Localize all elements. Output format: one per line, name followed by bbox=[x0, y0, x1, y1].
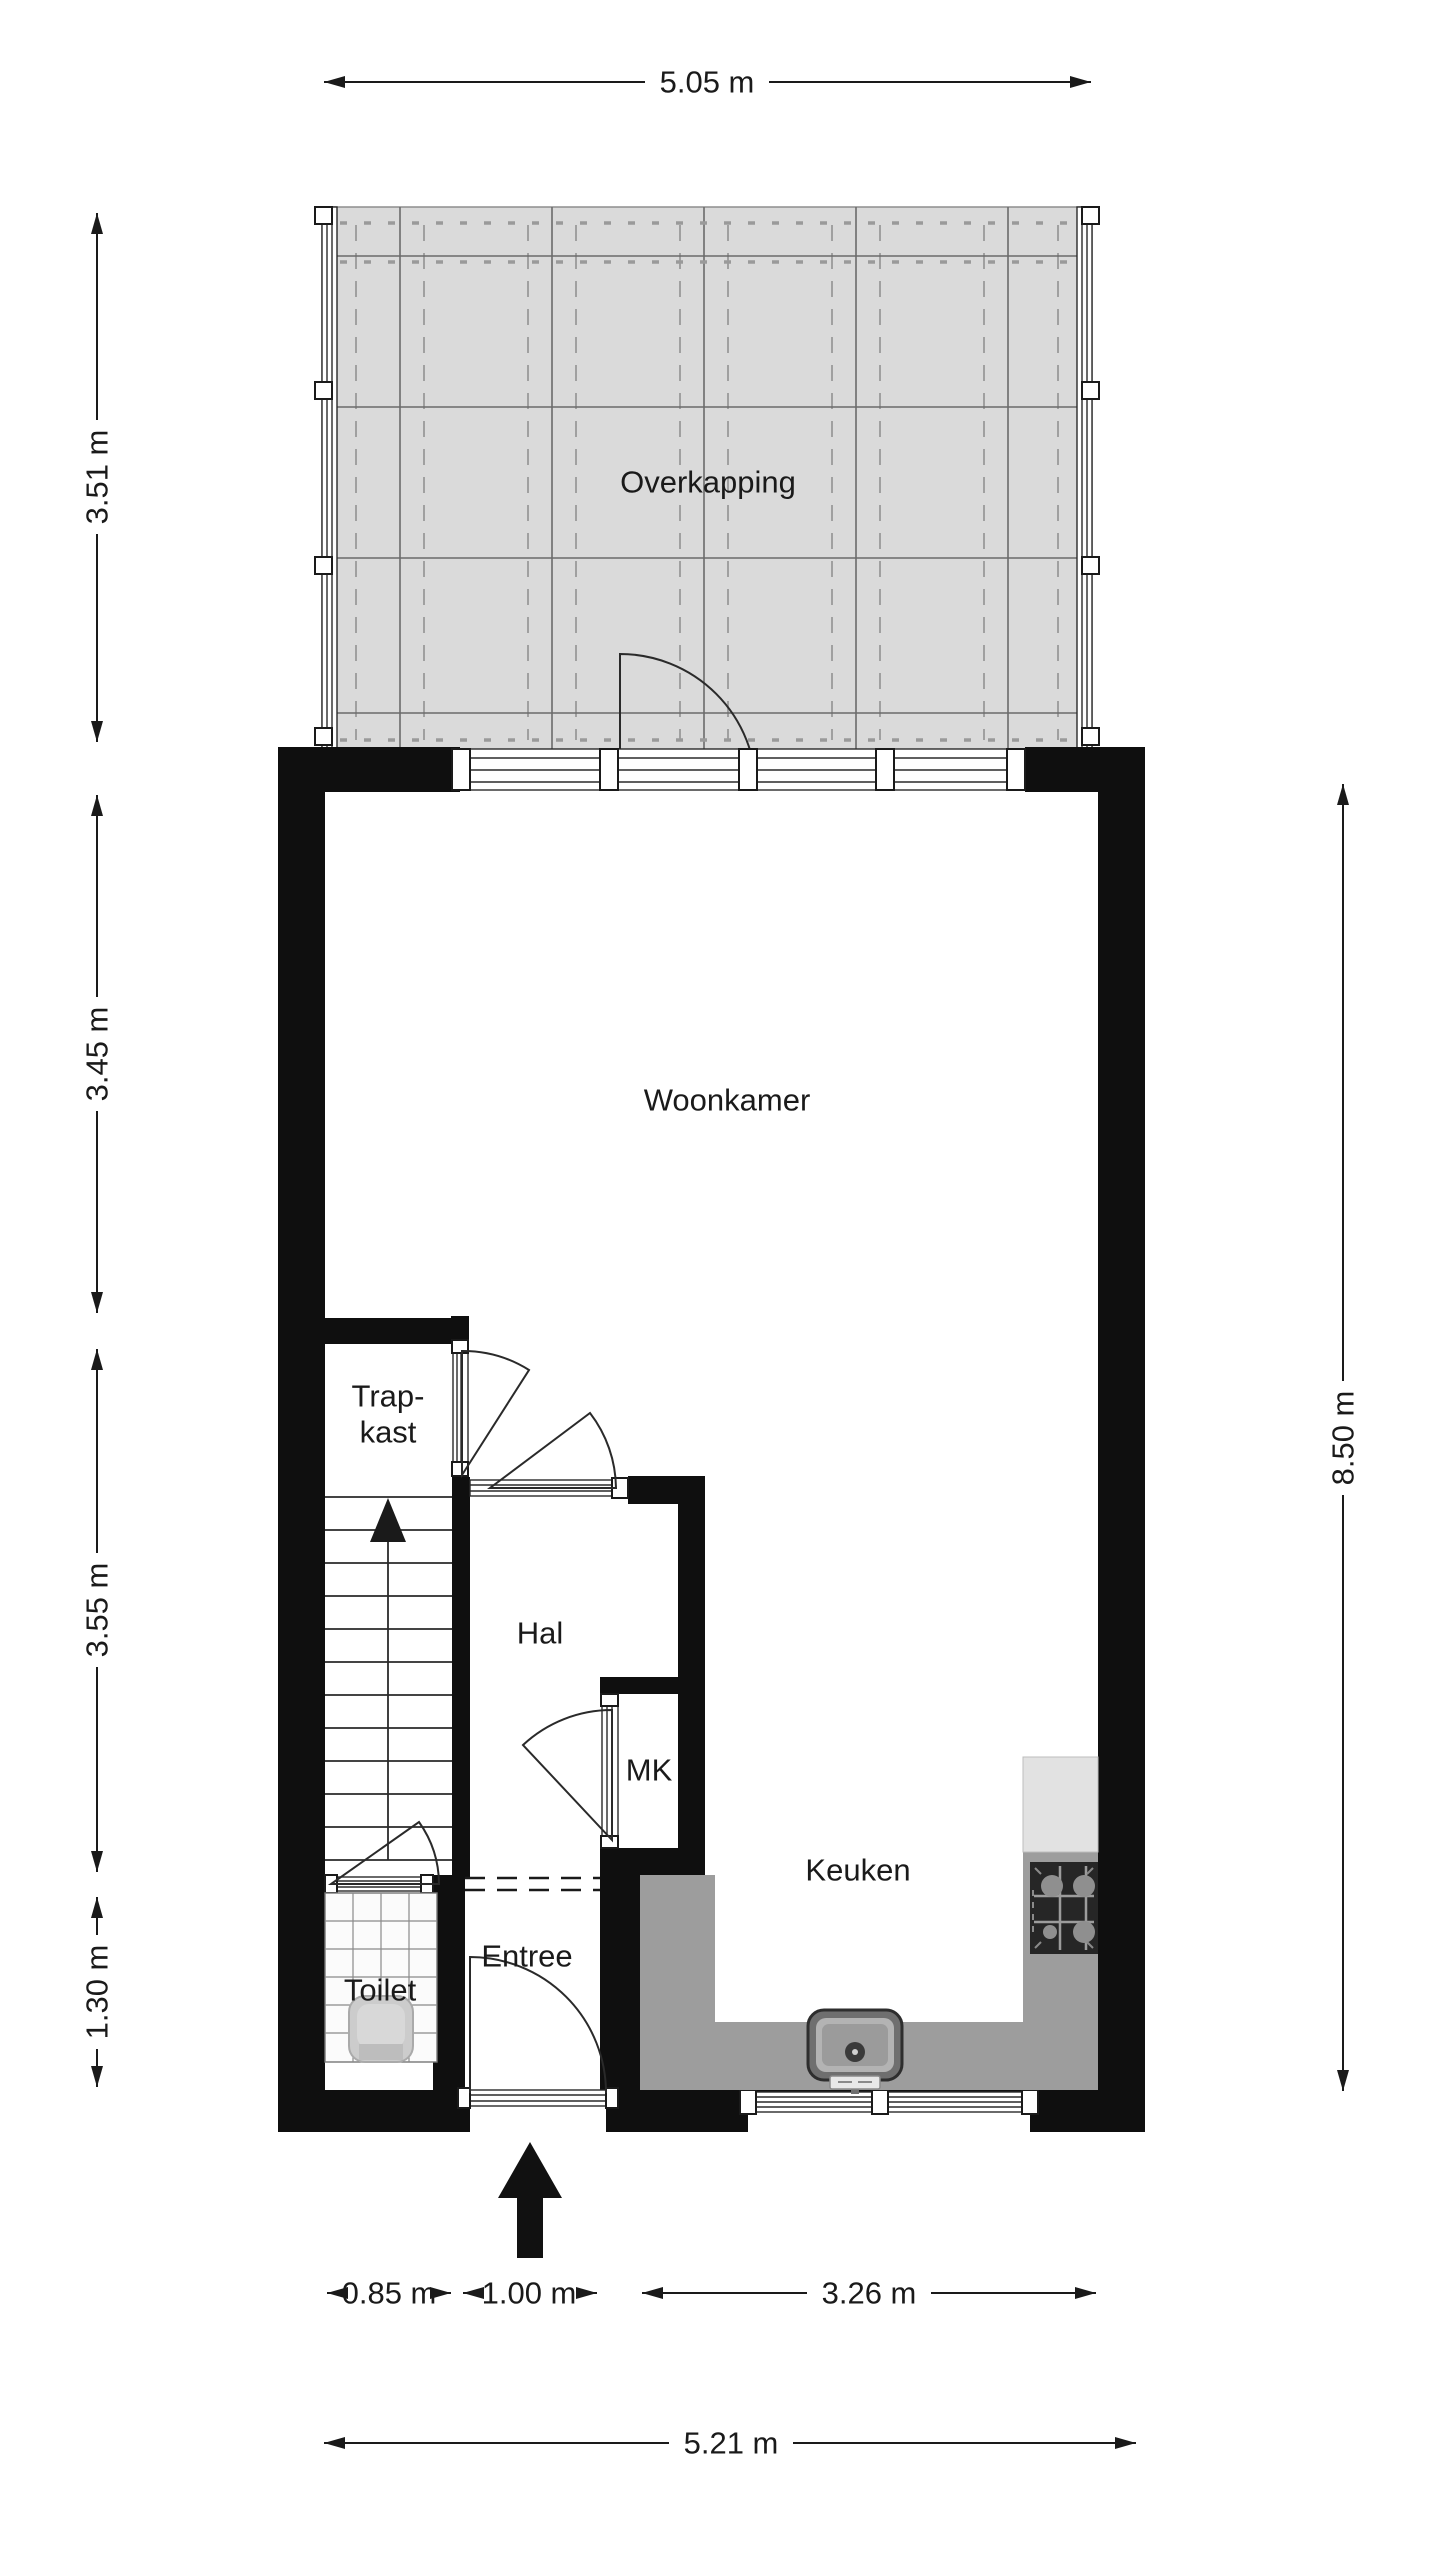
stove bbox=[1030, 1862, 1098, 1954]
window-post bbox=[1007, 749, 1025, 790]
door-swing-mk bbox=[523, 1710, 612, 1840]
overkapping-area: Overkapping bbox=[315, 207, 1099, 790]
dimension-left-overkapping: 3.51 m bbox=[80, 213, 115, 742]
burner bbox=[1073, 1875, 1095, 1897]
wall-top-right-pier bbox=[1025, 747, 1145, 792]
dim-bottom-width: 5.21 m bbox=[684, 2426, 779, 2461]
dimension-bottom-toilet: 0.85 m bbox=[327, 2276, 451, 2311]
dimension-left-woonkamer: 3.45 m bbox=[80, 795, 115, 1313]
room-label-entree: Entree bbox=[481, 1939, 572, 1974]
door-mk bbox=[523, 1694, 618, 1848]
dimension-bottom-keuken: 3.26 m bbox=[642, 2276, 1096, 2311]
dim-left-overkapping: 3.51 m bbox=[80, 430, 115, 525]
window-post bbox=[739, 749, 757, 790]
room-label-toilet: Toilet bbox=[344, 1973, 417, 2008]
overkapping-edge-right bbox=[1077, 207, 1099, 750]
canopy-post bbox=[315, 207, 332, 224]
dim-top-width: 5.05 m bbox=[660, 65, 755, 100]
door-swing-trapkast bbox=[462, 1351, 529, 1475]
dimension-top-width: 5.05 m bbox=[324, 65, 1091, 100]
floor-plan: Overkapping bbox=[0, 0, 1440, 2560]
burner bbox=[1041, 1875, 1063, 1897]
dim-bottom-toilet: 0.85 m bbox=[342, 2276, 437, 2311]
overkapping-edge-left bbox=[315, 207, 337, 750]
burner bbox=[1073, 1921, 1095, 1943]
window-keuken bbox=[740, 2090, 1038, 2132]
door-entree bbox=[458, 1957, 618, 2132]
stairs-direction-arrow-icon bbox=[370, 1498, 406, 1542]
wall-mk-top bbox=[600, 1677, 678, 1694]
room-label-keuken: Keuken bbox=[805, 1853, 910, 1888]
window-post bbox=[740, 2090, 756, 2114]
dim-right-height: 8.50 m bbox=[1326, 1391, 1361, 1486]
canopy-post bbox=[315, 382, 332, 399]
dimension-right-height: 8.50 m bbox=[1326, 784, 1361, 2091]
wall-top-left-pier bbox=[278, 747, 460, 792]
canopy-post bbox=[1082, 557, 1099, 574]
dimension-bottom-width: 5.21 m bbox=[324, 2426, 1136, 2461]
dimension-bottom-entree: 1.00 m bbox=[463, 2276, 597, 2311]
kitchen-appliance bbox=[1023, 1757, 1098, 1852]
wall-right bbox=[1098, 747, 1145, 2132]
wall-trapkast-top bbox=[325, 1318, 451, 1344]
sink bbox=[808, 2010, 902, 2094]
door-swing-hal bbox=[490, 1413, 616, 1488]
entrance-arrow-icon bbox=[498, 2142, 562, 2258]
dim-left-woonkamer: 3.45 m bbox=[80, 1007, 115, 1102]
canopy-post bbox=[1082, 382, 1099, 399]
room-label-woonkamer: Woonkamer bbox=[644, 1083, 811, 1118]
canopy-post bbox=[315, 557, 332, 574]
canopy-post bbox=[315, 728, 332, 745]
door-swing-entree bbox=[470, 1957, 606, 2093]
door-trapkast bbox=[452, 1340, 529, 1476]
dim-left-toilet: 1.30 m bbox=[80, 1945, 115, 2040]
dim-bottom-entree: 1.00 m bbox=[482, 2276, 577, 2311]
canopy-post bbox=[1082, 728, 1099, 745]
dim-left-hal: 3.55 m bbox=[80, 1563, 115, 1658]
window-post bbox=[1022, 2090, 1038, 2114]
dim-bottom-keuken: 3.26 m bbox=[822, 2276, 917, 2311]
wall-stairs-hal bbox=[452, 1477, 470, 1877]
room-label-hal: Hal bbox=[517, 1616, 564, 1651]
window-post bbox=[600, 749, 618, 790]
wall-left bbox=[278, 747, 325, 2132]
window-top-sliding bbox=[452, 749, 1025, 790]
wall-toilet-entree bbox=[433, 1875, 465, 2090]
window-post bbox=[876, 749, 894, 790]
dimension-left-hal: 3.55 m bbox=[80, 1349, 115, 1872]
room-label-trapkast-line2: kast bbox=[360, 1415, 417, 1450]
wall-entree-keuken bbox=[600, 1875, 640, 2090]
wall-hal-keuken bbox=[678, 1476, 705, 1877]
room-label-overkapping: Overkapping bbox=[620, 465, 796, 500]
opening-hal-entree bbox=[465, 1878, 600, 1890]
wall-mk-bottom bbox=[600, 1848, 705, 1875]
stairs bbox=[325, 1497, 452, 1860]
window-post bbox=[452, 749, 470, 790]
room-label-trapkast-line1: Trap- bbox=[352, 1379, 425, 1414]
burner bbox=[1043, 1925, 1057, 1939]
dimension-left-toilet: 1.30 m bbox=[80, 1897, 115, 2087]
window-post bbox=[872, 2090, 888, 2114]
canopy-post bbox=[1082, 207, 1099, 224]
room-label-mk: MK bbox=[626, 1753, 673, 1788]
door-toilet bbox=[325, 1822, 439, 1893]
